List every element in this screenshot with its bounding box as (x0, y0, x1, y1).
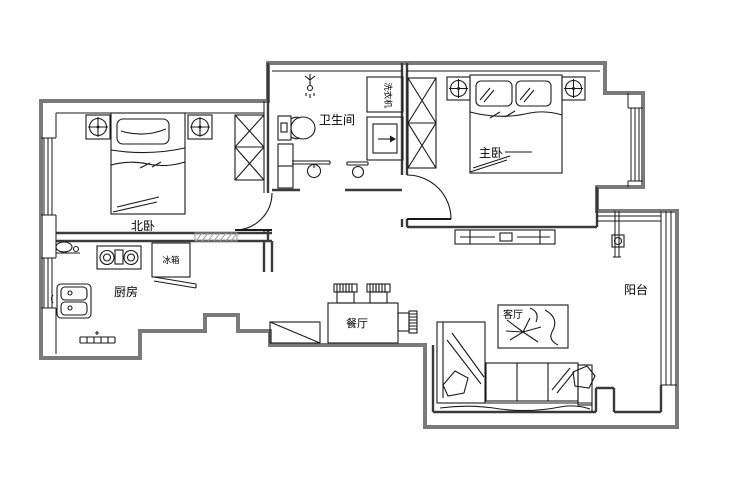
room-label-master-bedroom: 主卧 (479, 146, 503, 160)
floor-drain-icon (612, 235, 624, 247)
room-label-bathroom: 卫生间 (319, 113, 355, 127)
room-north-bedroom: 北卧 (86, 113, 272, 241)
fridge-label: 冰箱 (162, 255, 180, 266)
outer-walls (41, 63, 677, 427)
lamp-icon (449, 79, 468, 98)
interior-walls (56, 63, 661, 412)
lamp-icon (190, 117, 210, 137)
nightstand-right (562, 77, 585, 100)
window-kitchen (41, 258, 56, 308)
room-dining: 餐厅 (270, 284, 417, 343)
door-master-bedroom (407, 175, 451, 219)
shower-sliding-door (367, 117, 403, 160)
pillow (516, 81, 551, 106)
floor-plan-svg: 北卧 洗衣机 (0, 0, 740, 496)
radiator-icon (80, 331, 115, 343)
window-balcony-top (597, 216, 661, 221)
room-label-living: 客厅 (503, 308, 523, 321)
wardrobe-icon (235, 115, 264, 180)
pillow (476, 81, 512, 106)
toilet-icon (278, 116, 315, 140)
window-master-bedroom (628, 108, 643, 181)
lamp-icon (564, 79, 583, 98)
room-label-north-bedroom: 北卧 (131, 219, 155, 233)
sofa-back (437, 403, 592, 412)
nightstand-right (188, 115, 212, 139)
room-living: 客厅 (437, 305, 595, 412)
stove-icon (97, 246, 141, 269)
room-master-bedroom: 主卧 (407, 75, 585, 244)
room-label-dining: 餐厅 (346, 316, 368, 330)
water-heater-icon (56, 242, 80, 253)
dining-chair (367, 284, 390, 303)
window-balcony-right (661, 211, 677, 385)
bed-single (111, 113, 185, 214)
sink-counter-left (292, 161, 330, 178)
shoe-cabinet (270, 322, 320, 343)
tv-cabinet (455, 230, 555, 244)
window-balcony-left (613, 211, 621, 257)
shower-icon (305, 74, 315, 98)
wardrobe-icon (408, 78, 436, 168)
vanity-cabinet (278, 144, 293, 188)
sofa-chaise (437, 322, 485, 403)
sink-counter-right (347, 162, 368, 178)
door-north-bedroom (235, 193, 272, 230)
washing-machine: 洗衣机 (367, 77, 403, 112)
room-balcony: 阳台 (612, 235, 648, 297)
room-label-balcony: 阳台 (624, 282, 648, 297)
dining-chair (398, 311, 417, 333)
room-label-kitchen: 厨房 (114, 284, 138, 299)
room-kitchen: 冰箱 厨房 (52, 242, 197, 343)
sofa-pillow (443, 371, 468, 396)
lamp-icon (88, 117, 108, 137)
nightstand-left (86, 115, 110, 139)
fridge-icon: 冰箱 (152, 243, 196, 288)
room-bathroom: 洗衣机 卫生间 (278, 74, 403, 188)
window-north-bedroom (41, 138, 56, 215)
floor-plan-page: 北卧 洗衣机 (0, 0, 740, 496)
basin-icon (353, 167, 364, 178)
nightstand-left (447, 77, 470, 100)
sofa (437, 322, 595, 412)
kitchen-sink-icon (52, 284, 92, 318)
sofa-seats (486, 363, 578, 401)
washing-machine-label: 洗衣机 (382, 82, 393, 108)
dining-chair (334, 284, 357, 303)
rug: 客厅 (498, 305, 568, 348)
